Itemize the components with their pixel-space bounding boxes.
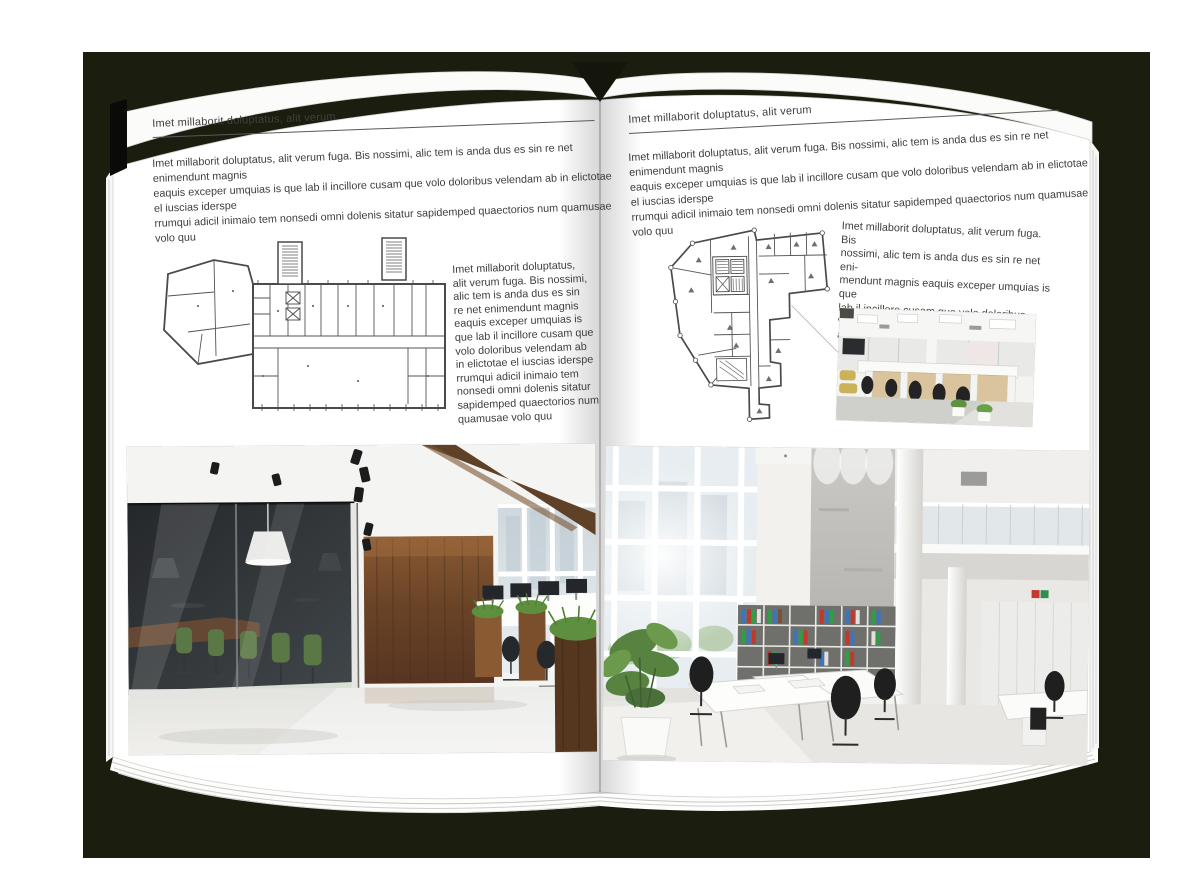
window-wall [603,446,759,707]
left-page-side-paragraph: Imet millaborit doluptatus, alit verum f… [452,258,608,427]
plan-stairs [716,358,746,381]
mezzanine-balcony [894,449,1090,581]
plan-stair-tower [382,238,406,280]
waste-bin [1030,708,1046,730]
plan-main-block [253,284,445,408]
foreground-planter [548,606,597,752]
office-photo-workstations-small [836,308,1036,427]
plan-stair-tower [278,242,302,284]
floor-plan-wide-building [158,236,458,418]
floor-plan-irregular-building [648,215,844,424]
plan-left-wing [164,260,253,364]
left-page-intro-paragraph: Imet millaborit doluptatus, alit verum f… [152,139,615,247]
cover-edge-shadow [110,99,127,176]
wood-wall-light [364,536,494,557]
brochure-mockup-stage: Imet millaborit doluptatus, alit verum I… [0,0,1200,891]
vent-grille [961,472,987,486]
fore-edge-right [1090,140,1099,752]
office-photo-glass-meeting-room [127,444,597,755]
office-photo-atrium [603,446,1090,765]
plan-reference-line [792,305,839,354]
plan-core [713,256,748,295]
